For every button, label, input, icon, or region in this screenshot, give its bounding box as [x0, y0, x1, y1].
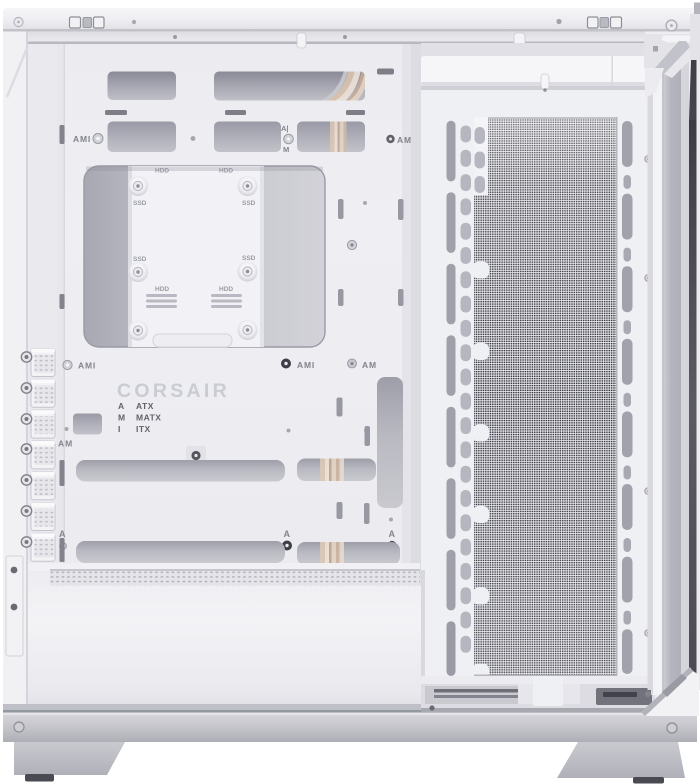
svg-text:SSD: SSD [242, 200, 256, 207]
svg-text:SSD: SSD [242, 255, 256, 262]
svg-text:SSD: SSD [133, 200, 147, 207]
svg-text:SSD: SSD [133, 256, 147, 263]
svg-text:AM: AM [397, 135, 412, 145]
svg-text:AM: AM [362, 360, 377, 370]
svg-text:HDD: HDD [155, 286, 169, 293]
svg-text:MATX: MATX [136, 413, 161, 423]
svg-text:AMI: AMI [73, 134, 91, 144]
svg-text:A: A [59, 529, 66, 539]
svg-text:A|: A| [281, 124, 289, 133]
svg-text:M: M [283, 145, 289, 154]
svg-text:AMI: AMI [297, 360, 315, 370]
svg-text:ATX: ATX [136, 401, 154, 411]
svg-text:ITX: ITX [136, 424, 151, 434]
svg-text:AMI: AMI [78, 361, 96, 371]
svg-text:M: M [118, 413, 125, 423]
svg-text:I: I [118, 424, 120, 434]
svg-text:A: A [284, 529, 291, 539]
svg-text:A: A [389, 529, 396, 539]
svg-text:AM: AM [58, 439, 73, 449]
svg-text:A: A [118, 401, 124, 411]
svg-text:CORSAIR: CORSAIR [117, 380, 230, 402]
svg-text:HDD: HDD [219, 286, 233, 293]
